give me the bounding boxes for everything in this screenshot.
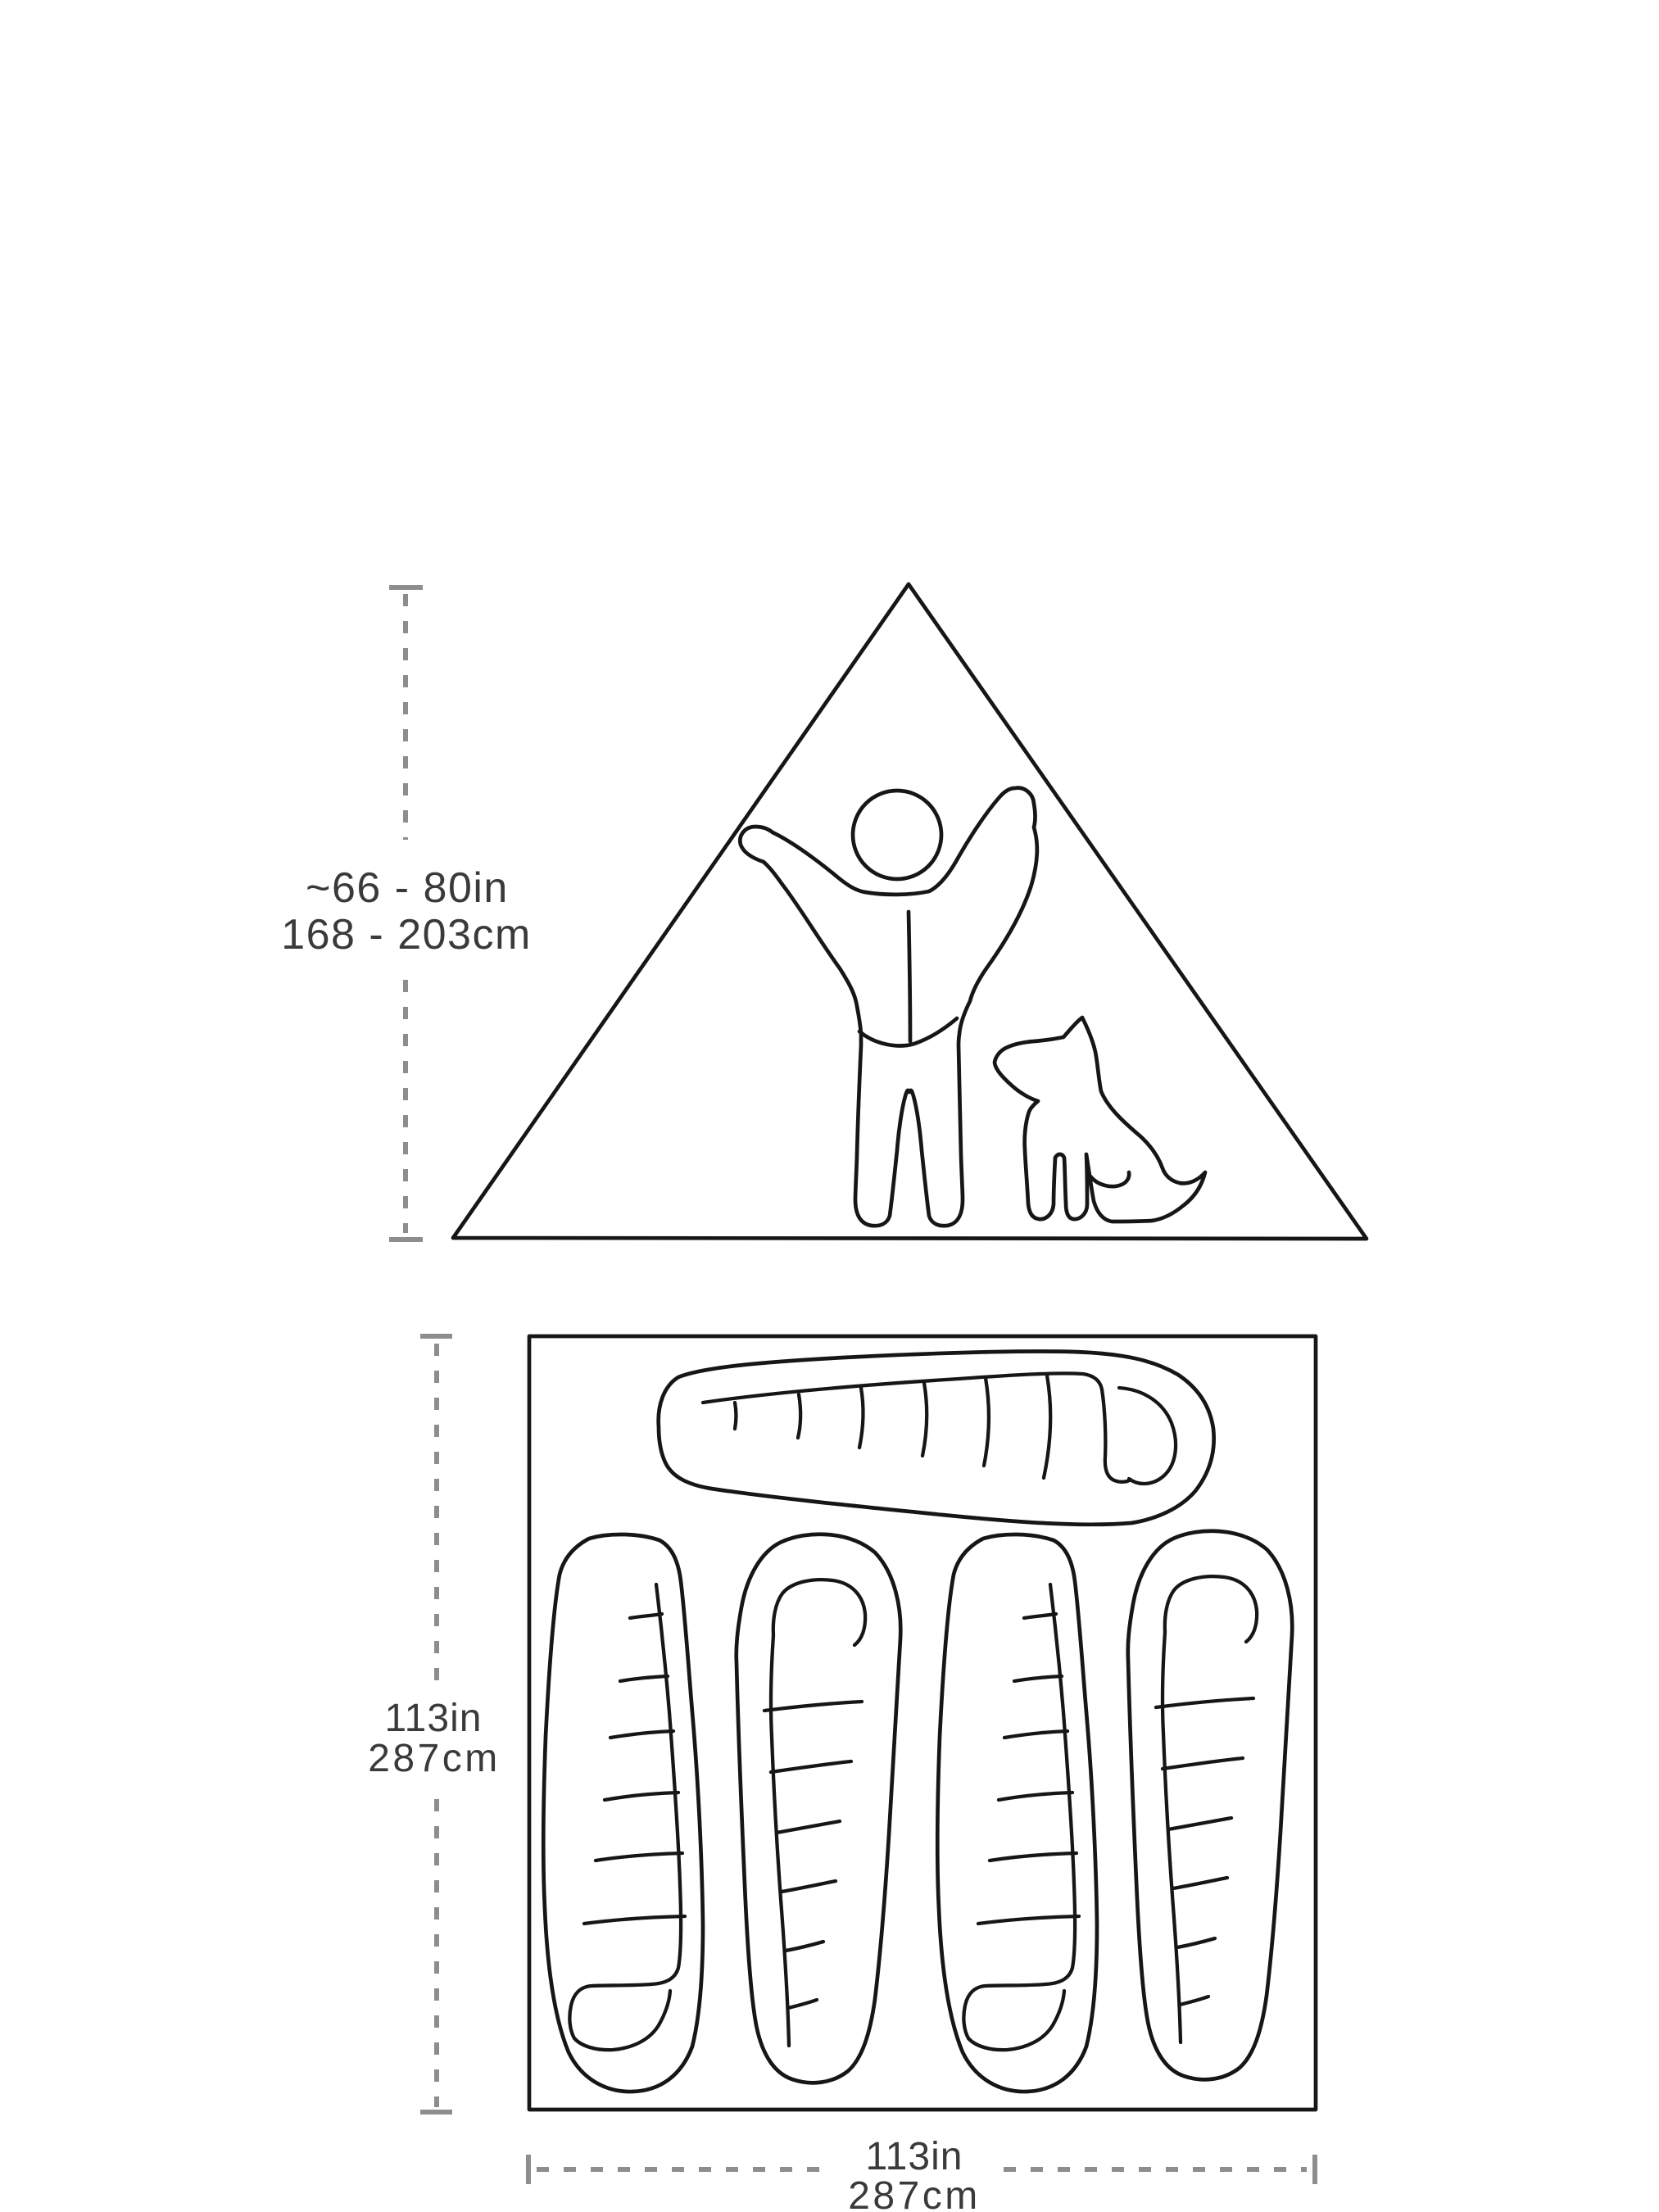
svg-text:113in: 113in xyxy=(385,1697,483,1740)
svg-text:~66 - 80in: ~66 - 80in xyxy=(306,864,509,912)
svg-text:287cm: 287cm xyxy=(848,2174,981,2212)
svg-text:287cm: 287cm xyxy=(368,1737,501,1780)
svg-text:168 - 203cm: 168 - 203cm xyxy=(281,911,532,959)
svg-text:113in: 113in xyxy=(866,2135,963,2178)
